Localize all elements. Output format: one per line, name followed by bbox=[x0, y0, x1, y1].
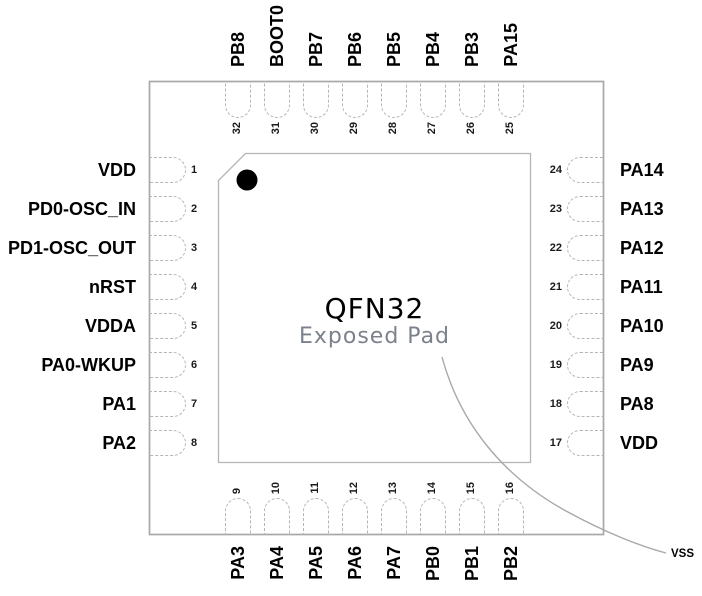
pin-13-label: PA7 bbox=[385, 546, 403, 580]
pin-11-label: PA5 bbox=[307, 546, 325, 580]
pin-5-label: VDDA bbox=[0, 317, 136, 335]
pin-30-label: PB7 bbox=[307, 32, 325, 67]
pin-8-label: PA2 bbox=[0, 434, 136, 452]
pin-29-label: PB6 bbox=[346, 32, 364, 67]
pin-14-label: PB0 bbox=[424, 546, 442, 581]
pin-17-number: 17 bbox=[544, 437, 562, 450]
pin-4 bbox=[149, 274, 186, 300]
pin-20 bbox=[567, 313, 604, 339]
pin-24-label: PA14 bbox=[620, 161, 664, 179]
qfn32-pinout-diagram: QFN32 Exposed Pad VSS 32PB831BOOT030PB72… bbox=[0, 0, 702, 596]
pin-2-number: 2 bbox=[191, 203, 209, 216]
pin-14-number: 14 bbox=[426, 482, 439, 494]
pin-13-number: 13 bbox=[387, 482, 400, 494]
pin-12-label: PA6 bbox=[346, 546, 364, 580]
pin-4-number: 4 bbox=[191, 281, 209, 294]
pin-30 bbox=[303, 81, 329, 118]
pin-7 bbox=[149, 391, 186, 417]
pin-6-number: 6 bbox=[191, 359, 209, 372]
pin-20-label: PA10 bbox=[620, 317, 664, 335]
pin-9-label: PA3 bbox=[229, 546, 247, 580]
pin-23-label: PA13 bbox=[620, 200, 664, 218]
pin-3-number: 3 bbox=[191, 242, 209, 255]
pin-32-label: PB8 bbox=[229, 32, 247, 67]
pin-16 bbox=[498, 498, 524, 535]
exposed-pad-net-label: VSS bbox=[671, 548, 694, 561]
pin-30-number: 30 bbox=[309, 122, 322, 134]
pin-22-label: PA12 bbox=[620, 239, 664, 257]
pin-23-number: 23 bbox=[544, 203, 562, 216]
pin-19-label: PA9 bbox=[620, 356, 654, 374]
pin-21 bbox=[567, 274, 604, 300]
pin-9 bbox=[225, 498, 251, 535]
pin-29-number: 29 bbox=[348, 122, 361, 134]
pin-8-number: 8 bbox=[191, 437, 209, 450]
pin-32-number: 32 bbox=[231, 122, 244, 134]
pin-32 bbox=[225, 81, 251, 118]
pin-21-number: 21 bbox=[544, 281, 562, 294]
pin-19-number: 19 bbox=[544, 359, 562, 372]
pin-25-label: PA15 bbox=[502, 23, 520, 67]
pin-18-label: PA8 bbox=[620, 395, 654, 413]
pin-20-number: 20 bbox=[544, 320, 562, 333]
pin-10-label: PA4 bbox=[268, 546, 286, 580]
pin-10-number: 10 bbox=[270, 482, 283, 494]
pin-5-number: 5 bbox=[191, 320, 209, 333]
pin-18-number: 18 bbox=[544, 398, 562, 411]
pin-15-number: 15 bbox=[465, 482, 478, 494]
pin-23 bbox=[567, 196, 604, 222]
pin-19 bbox=[567, 352, 604, 378]
pin-18 bbox=[567, 391, 604, 417]
pin-2 bbox=[149, 196, 186, 222]
pin-3-label: PD1-OSC_OUT bbox=[0, 239, 136, 257]
pin-28 bbox=[381, 81, 407, 118]
pin1-marker-dot bbox=[237, 170, 258, 191]
pin-26-number: 26 bbox=[465, 122, 478, 134]
pin-17-label: VDD bbox=[620, 434, 658, 452]
pin-8 bbox=[149, 430, 186, 456]
pin-26-label: PB3 bbox=[463, 32, 481, 67]
package-name-label: QFN32 bbox=[218, 292, 531, 325]
pin-5 bbox=[149, 313, 186, 339]
pin-29 bbox=[342, 81, 368, 118]
pin-16-number: 16 bbox=[504, 482, 517, 494]
pin-14 bbox=[420, 498, 446, 535]
pin-6-label: PA0-WKUP bbox=[0, 356, 136, 374]
pin-17 bbox=[567, 430, 604, 456]
pin-6 bbox=[149, 352, 186, 378]
pin-31-number: 31 bbox=[270, 122, 283, 134]
pin-15 bbox=[459, 498, 485, 535]
pin-27-number: 27 bbox=[426, 122, 439, 134]
pin-2-label: PD0-OSC_IN bbox=[0, 200, 136, 218]
pin-4-label: nRST bbox=[0, 278, 136, 296]
pin-22 bbox=[567, 235, 604, 261]
pin-21-label: PA11 bbox=[620, 278, 663, 296]
pin-1-number: 1 bbox=[191, 164, 209, 177]
pin-10 bbox=[264, 498, 290, 535]
pin-27 bbox=[420, 81, 446, 118]
pin-28-label: PB5 bbox=[385, 32, 403, 67]
pin-27-label: PB4 bbox=[424, 32, 442, 67]
pin-24 bbox=[567, 157, 604, 183]
pin-12-number: 12 bbox=[348, 482, 361, 494]
pin-26 bbox=[459, 81, 485, 118]
pin-12 bbox=[342, 498, 368, 535]
pin-28-number: 28 bbox=[387, 122, 400, 134]
pin-16-label: PB2 bbox=[502, 546, 520, 581]
pin-11 bbox=[303, 498, 329, 535]
pin-31 bbox=[264, 81, 290, 118]
pin-22-number: 22 bbox=[544, 242, 562, 255]
pin-7-number: 7 bbox=[191, 398, 209, 411]
pin-25-number: 25 bbox=[504, 122, 517, 134]
pin-13 bbox=[381, 498, 407, 535]
pin-31-label: BOOT0 bbox=[268, 5, 286, 67]
pin-9-number: 9 bbox=[231, 488, 244, 494]
pin-3 bbox=[149, 235, 186, 261]
pin-1-label: VDD bbox=[0, 161, 136, 179]
pin-15-label: PB1 bbox=[463, 546, 481, 581]
exposed-pad-label: Exposed Pad bbox=[218, 324, 531, 349]
pin-1 bbox=[149, 157, 186, 183]
pin-24-number: 24 bbox=[544, 164, 562, 177]
pin-11-number: 11 bbox=[309, 482, 322, 494]
pin-7-label: PA1 bbox=[0, 395, 136, 413]
pin-25 bbox=[498, 81, 524, 118]
